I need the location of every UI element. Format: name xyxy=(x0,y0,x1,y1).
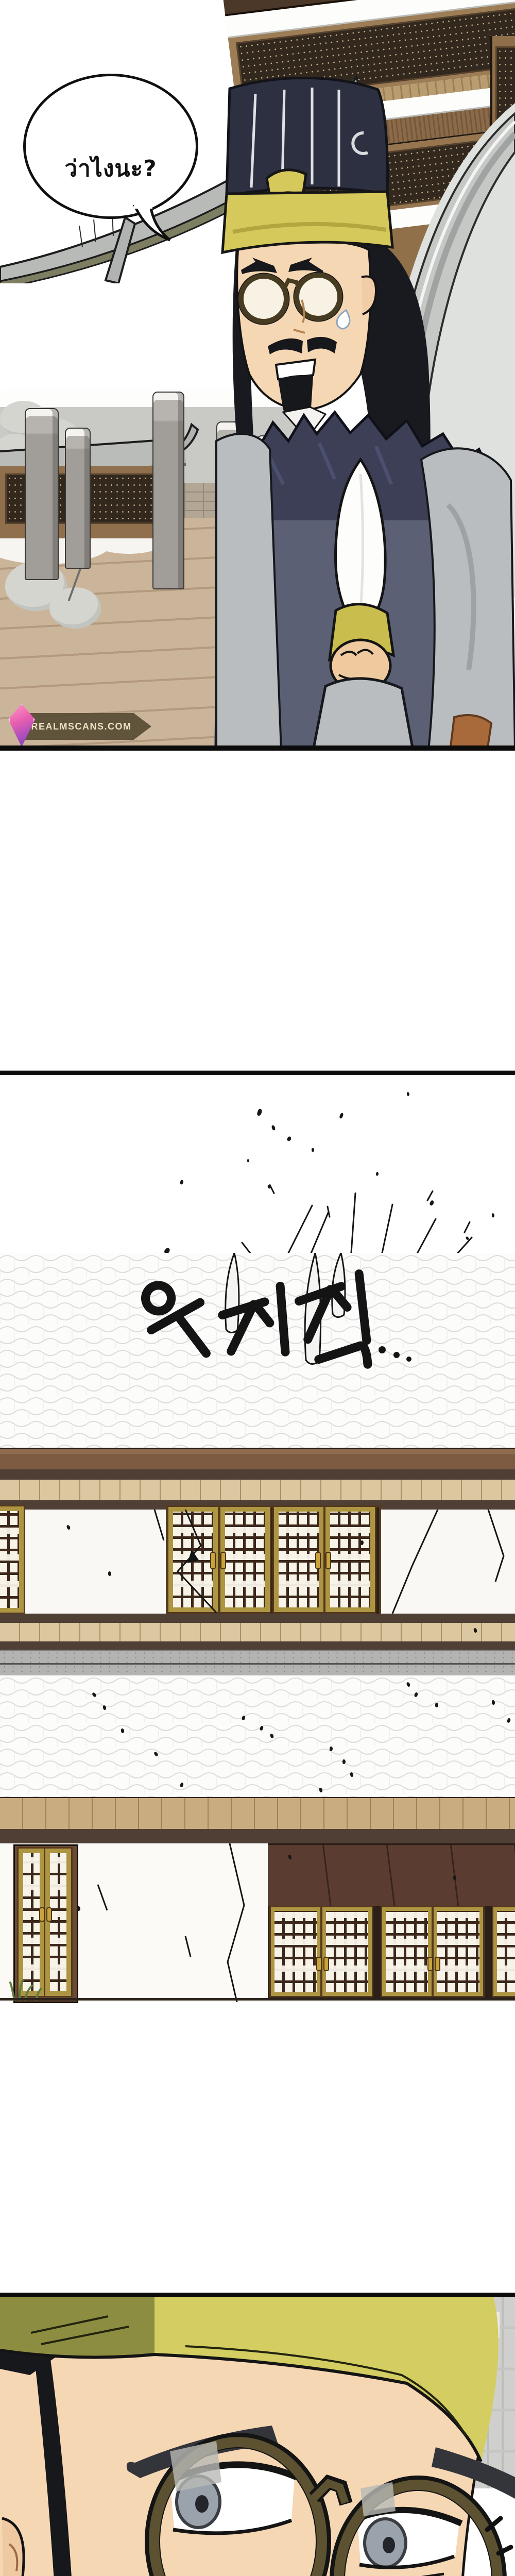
hat-gold-band xyxy=(222,192,392,252)
panel-face-closeup xyxy=(0,2297,515,2576)
lattice-door xyxy=(382,1907,432,1996)
door-handle xyxy=(435,1957,440,1971)
debris-fleck xyxy=(339,1112,344,1119)
window-wall xyxy=(0,1510,515,1614)
wall-cracks xyxy=(77,1843,268,2002)
panel-border xyxy=(0,2293,515,2297)
door-handle xyxy=(316,1957,322,1971)
watermark-text: REALMSCANS.COM xyxy=(31,721,145,732)
sfx-char-u xyxy=(139,1273,219,1369)
wall-cracks xyxy=(0,1510,515,1614)
debris-fleck xyxy=(271,1125,276,1130)
speech-bubble-tail xyxy=(130,205,179,247)
debris-fleck xyxy=(77,1906,80,1911)
door-sill xyxy=(0,1998,515,2001)
lattice-door xyxy=(434,1907,483,1996)
watermark-gem-icon xyxy=(8,704,35,747)
beam xyxy=(0,1829,515,1844)
sfx-char-jik xyxy=(296,1274,375,1374)
scanlation-watermark: REALMSCANS.COM xyxy=(5,704,154,748)
debris-fleck xyxy=(407,1092,409,1096)
face-art-placeholder xyxy=(0,2297,515,2576)
sfx-crack-strokes xyxy=(139,1268,427,1382)
lattice-door xyxy=(19,1849,44,1996)
official-character xyxy=(206,77,515,751)
door-handle xyxy=(39,1907,45,1922)
debris-fleck xyxy=(492,1700,495,1705)
roof-tile-field xyxy=(0,1675,515,1797)
coat-left xyxy=(216,434,281,751)
debris-fleck xyxy=(247,1159,249,1162)
debris-fleck xyxy=(108,1571,111,1576)
plank-row xyxy=(0,1623,515,1642)
roof-tile-field: 우지직 ... xyxy=(0,1253,515,1448)
beam xyxy=(0,1469,515,1481)
beam xyxy=(0,1614,515,1624)
plank-row xyxy=(0,1480,515,1501)
speech-bubble: ว่าไงนะ? xyxy=(23,74,198,219)
glasses-left-lens xyxy=(241,276,286,321)
stone-band xyxy=(0,1650,515,1676)
lattice-door xyxy=(493,1907,515,1996)
plank-row xyxy=(0,1797,515,1830)
lattice-door xyxy=(271,1907,320,1996)
porch-shadow xyxy=(268,1843,515,1908)
panel-border xyxy=(0,745,515,751)
webtoon-page: ว่าไงนะ? REALMSCANS.COM xyxy=(0,0,515,2576)
watermark-banner: REALMSCANS.COM xyxy=(25,713,151,740)
porch-doors-row xyxy=(268,1906,515,1998)
debris-fleck xyxy=(312,1148,314,1152)
sleeve xyxy=(313,679,413,751)
door-handle xyxy=(46,1907,52,1922)
lattice-door xyxy=(45,1849,71,1996)
porch-level xyxy=(0,1843,515,2002)
debris-fleck xyxy=(121,1728,125,1733)
door-handle xyxy=(323,1957,329,1971)
debris-fleck xyxy=(286,1136,292,1142)
debris-fleck xyxy=(492,1213,494,1217)
panel-courtyard-scene: ว่าไงนะ? REALMSCANS.COM xyxy=(0,0,515,751)
coat-right xyxy=(421,448,515,751)
lattice-door xyxy=(322,1907,372,1996)
door-handle xyxy=(427,1957,433,1971)
debris-fleck xyxy=(256,1108,263,1116)
sfx-char-ji xyxy=(219,1286,289,1360)
panel-border xyxy=(0,1071,515,1075)
beam xyxy=(0,1448,515,1472)
